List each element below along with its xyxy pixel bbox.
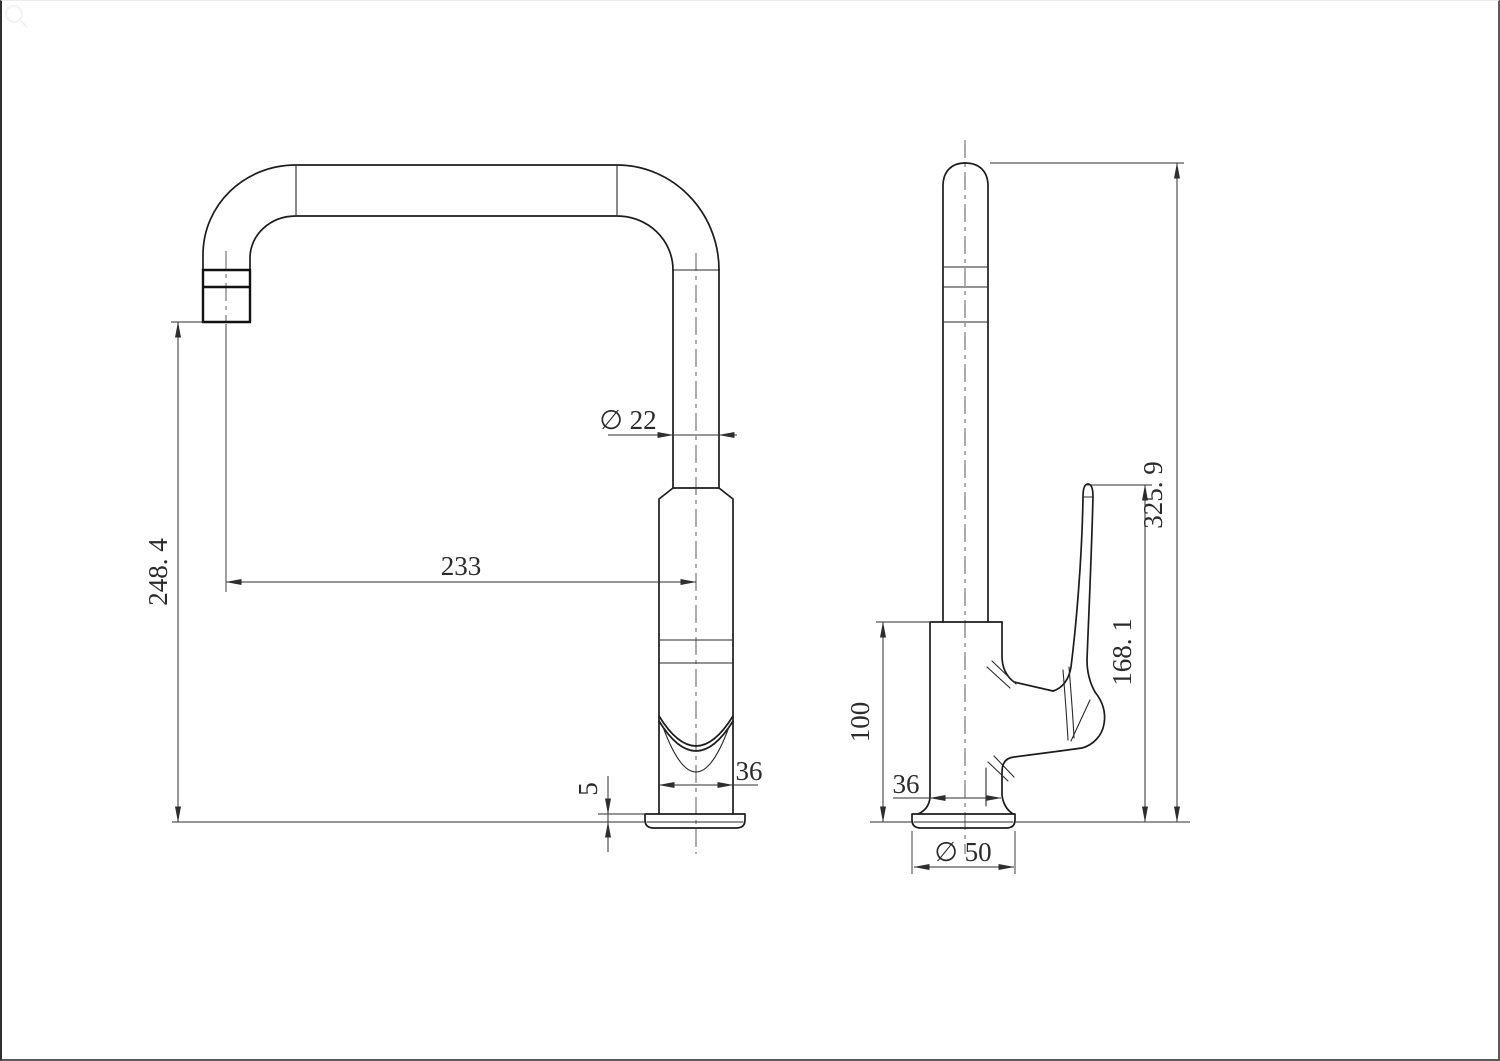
dim-body-width-side: 36 <box>893 769 1002 799</box>
dim-spout-outlet-height: 248. 4 <box>143 322 178 822</box>
front-base-plate <box>645 814 745 828</box>
side-upper-corner-facets <box>987 661 1016 688</box>
spout-arch-tangent-ticks <box>296 165 719 270</box>
front-view: 248. 4 233 ∅ 22 36 <box>143 165 763 854</box>
side-body-left <box>918 622 1002 814</box>
handle-lever-blade <box>1053 484 1095 692</box>
dim-body-width-front: 36 <box>659 756 763 786</box>
dim-spout-reach: 233 <box>226 551 696 582</box>
dim-spout-tube-diameter: ∅ 22 <box>599 405 737 435</box>
dim-body-height: 100 <box>845 622 883 822</box>
side-spout-bands <box>943 267 988 322</box>
dim-label-5: 5 <box>573 782 603 796</box>
dim-overall-height: 325. 9 <box>1138 163 1177 822</box>
side-view: 100 36 ∅ 50 168. 1 <box>845 140 1190 874</box>
side-body-right-upper <box>1002 622 1053 691</box>
dim-handle-tip-height: 168. 1 <box>1107 485 1145 822</box>
dim-label-168-1: 168. 1 <box>1107 618 1137 686</box>
dim-label-248-4: 248. 4 <box>143 538 173 606</box>
magnifier-watermark-icon <box>2 2 30 30</box>
dim-label-233: 233 <box>441 551 482 581</box>
dim-label-d22: ∅ 22 <box>599 405 656 435</box>
side-base-plate <box>912 814 1015 828</box>
handle-grip-inner-line <box>1071 700 1090 741</box>
spout-arch-inner-edge <box>250 216 673 270</box>
side-body-right-lower <box>1002 751 1060 814</box>
side-lower-corner-facets <box>988 756 1014 781</box>
dim-label-36-side: 36 <box>893 769 920 799</box>
front-extension-lines <box>171 322 646 814</box>
dim-base-plate-diameter: ∅ 50 <box>914 837 1014 867</box>
faucet-dimensional-drawing: 248. 4 233 ∅ 22 36 <box>0 0 1500 1061</box>
side-spout-tube <box>943 163 988 622</box>
dim-label-d50: ∅ 50 <box>934 837 991 867</box>
dim-label-100: 100 <box>845 702 875 743</box>
drawing-canvas: 248. 4 233 ∅ 22 36 <box>0 0 1500 1061</box>
spout-outlet <box>203 270 250 322</box>
dim-label-36-front: 36 <box>736 756 763 786</box>
dim-label-325-9: 325. 9 <box>1138 461 1168 529</box>
